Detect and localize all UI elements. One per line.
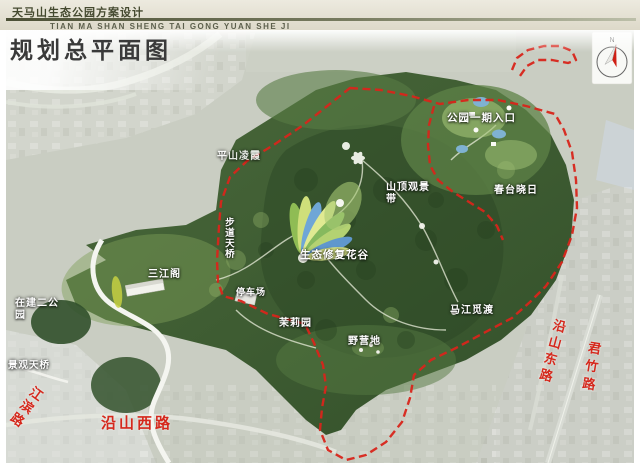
header-rule [6, 18, 636, 21]
label-second-park-in-construction: 在建二公园 [15, 298, 61, 321]
label-landscape-footbridge: 景观天桥 [8, 361, 50, 372]
label-chuntai-xiaori: 春台晓日 [494, 185, 538, 197]
map-art: N [6, 30, 634, 463]
label-parking-lot: 停车场 [236, 287, 266, 297]
label-jasmine-garden: 茉莉园 [279, 318, 312, 330]
map-canvas: N 平山凌霞 公园一期入口 山顶观景带 春台晓日 生态修复花谷 步道天桥 三江阁… [6, 30, 634, 463]
label-majiang-midu: 马江觅渡 [450, 305, 494, 317]
label-park-phase1-entrance: 公园一期入口 [447, 112, 516, 124]
label-trail-footbridge: 步道天桥 [222, 217, 233, 277]
label-yanshan-west-road: 沿山西路 [101, 412, 173, 433]
drawing-title: 规划总平面图 [10, 31, 172, 65]
label-pingshan-lingxia: 平山凌霞 [217, 151, 261, 163]
label-campground: 野营地 [348, 336, 381, 348]
plan-sheet: 天马山生态公园方案设计 TIAN MA SHAN SHENG TAI GONG … [0, 0, 640, 463]
label-summit-viewing-belt: 山顶观景带 [386, 182, 436, 205]
label-sanjiang-pavilion: 三江阁 [148, 269, 181, 281]
label-eco-restoration-flower-valley: 生态修复花谷 [300, 249, 369, 261]
